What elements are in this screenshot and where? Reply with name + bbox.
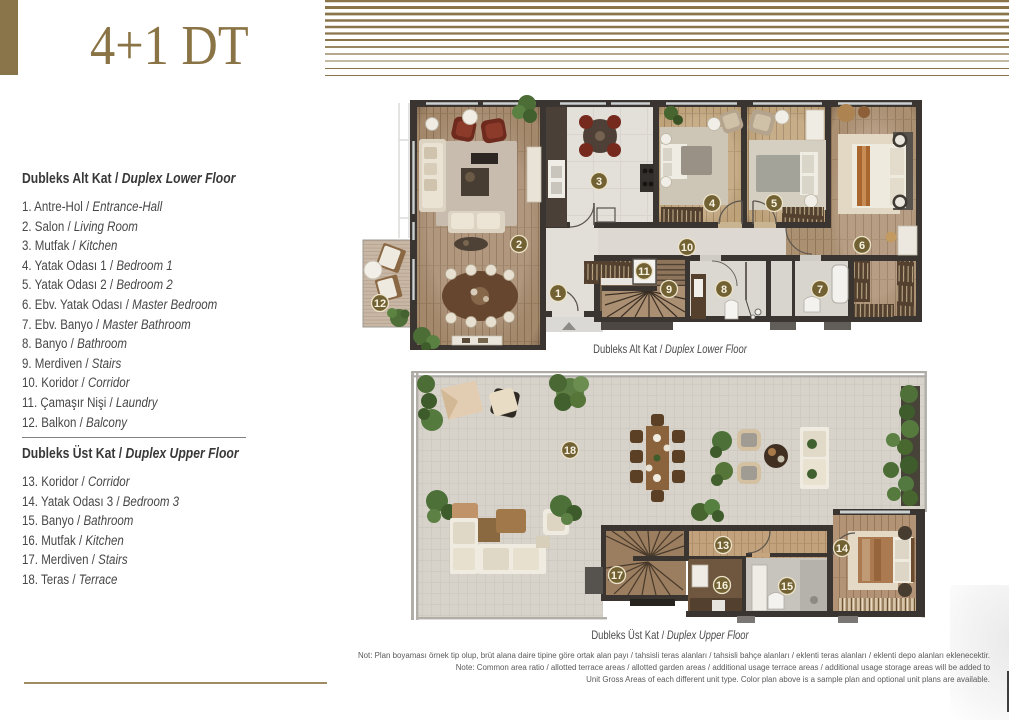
svg-text:11: 11 <box>638 266 650 278</box>
svg-text:9: 9 <box>666 284 672 296</box>
svg-text:15: 15 <box>781 581 793 593</box>
svg-text:2: 2 <box>516 239 522 251</box>
svg-text:4: 4 <box>709 198 716 210</box>
svg-text:18: 18 <box>564 445 576 457</box>
svg-text:1: 1 <box>555 288 561 300</box>
svg-text:17: 17 <box>611 570 623 582</box>
svg-text:3: 3 <box>596 176 602 188</box>
svg-text:8: 8 <box>721 284 727 296</box>
svg-text:13: 13 <box>717 540 729 552</box>
svg-text:12: 12 <box>374 298 386 310</box>
svg-text:5: 5 <box>771 198 777 210</box>
svg-text:16: 16 <box>716 580 728 592</box>
svg-text:7: 7 <box>817 284 823 296</box>
svg-text:10: 10 <box>681 242 693 254</box>
svg-text:14: 14 <box>836 543 849 555</box>
svg-text:6: 6 <box>859 240 865 252</box>
